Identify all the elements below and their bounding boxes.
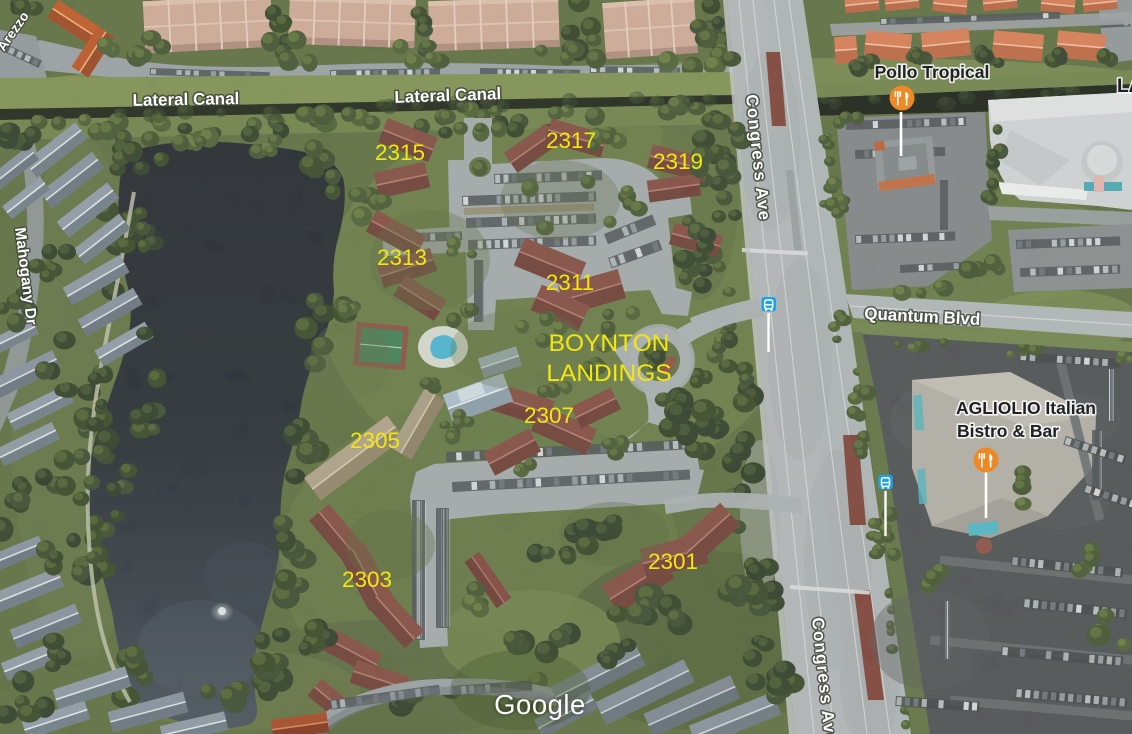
svg-text:Pollo Tropical: Pollo Tropical <box>875 62 990 82</box>
svg-text:2303: 2303 <box>342 567 392 592</box>
svg-text:2311: 2311 <box>546 270 594 295</box>
svg-text:LA: LA <box>1117 76 1132 97</box>
svg-text:LANDINGS: LANDINGS <box>546 360 671 387</box>
svg-text:2305: 2305 <box>350 428 400 453</box>
svg-text:AGLIOLIO Italian: AGLIOLIO Italian <box>956 398 1096 418</box>
svg-text:Lateral Canal: Lateral Canal <box>394 84 501 107</box>
svg-text:Lateral Canal: Lateral Canal <box>132 89 239 110</box>
svg-text:2301: 2301 <box>648 549 698 574</box>
svg-text:2319: 2319 <box>653 149 703 174</box>
svg-text:BOYNTON: BOYNTON <box>549 330 670 357</box>
svg-text:Bistro & Bar: Bistro & Bar <box>957 421 1059 441</box>
svg-text:2307: 2307 <box>524 403 574 428</box>
svg-text:Google: Google <box>494 689 586 720</box>
svg-text:2313: 2313 <box>377 245 427 270</box>
svg-text:2317: 2317 <box>546 128 596 153</box>
svg-text:2315: 2315 <box>375 140 425 165</box>
